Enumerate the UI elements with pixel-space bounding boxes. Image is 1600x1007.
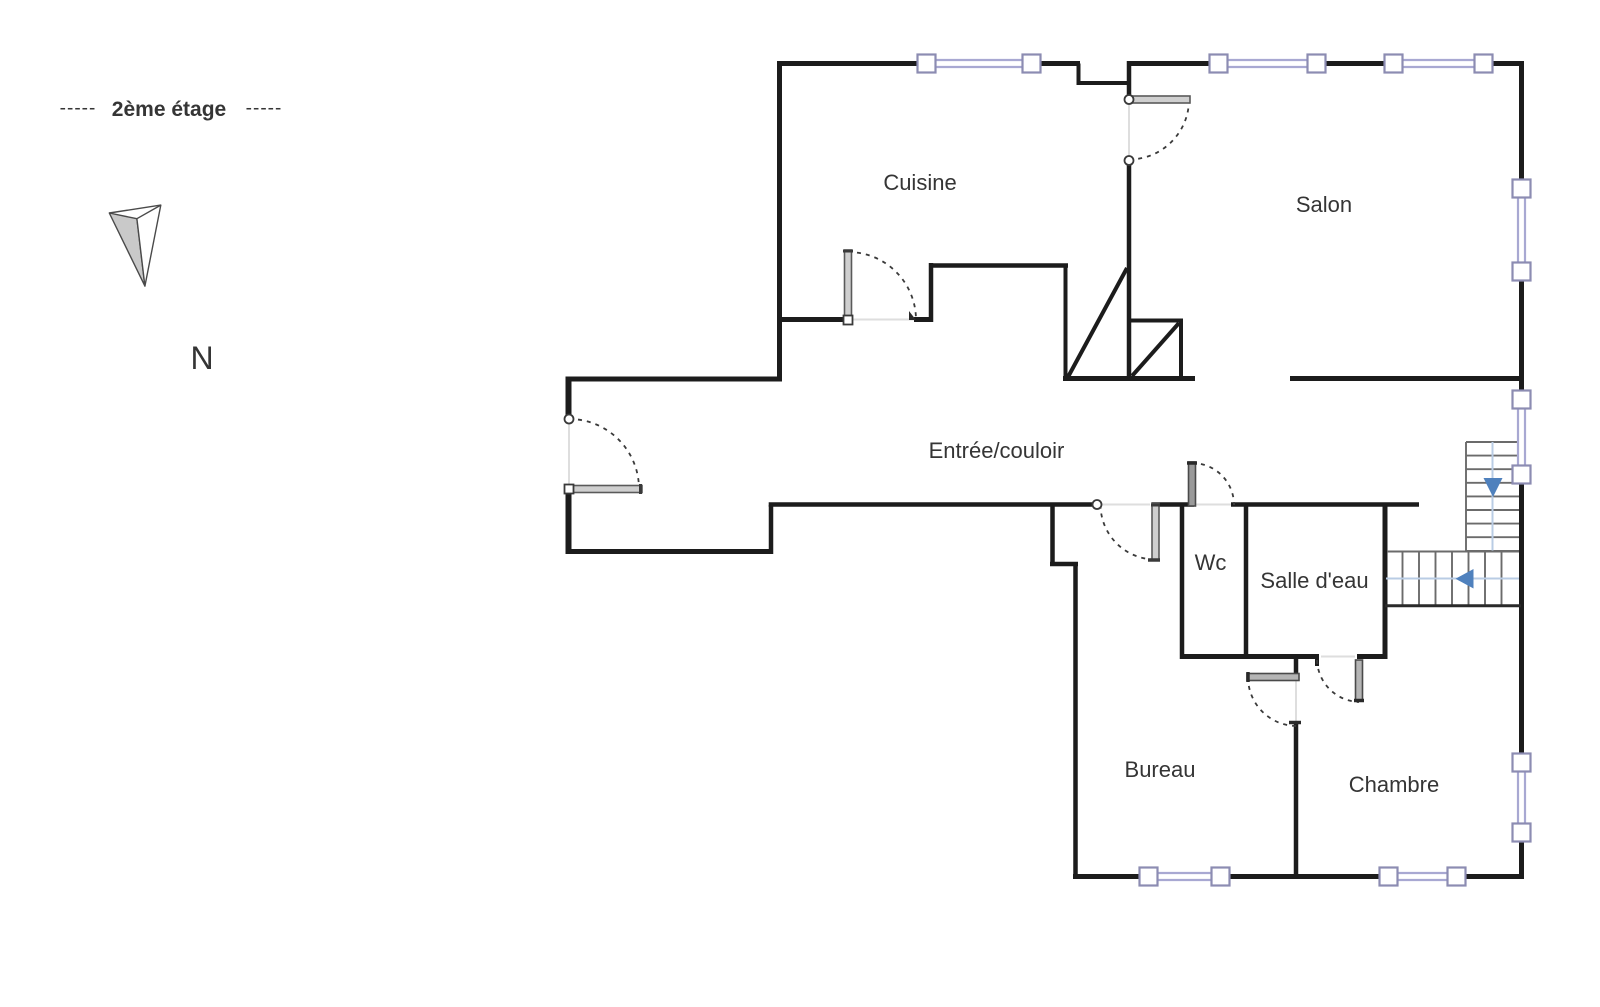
svg-text:N: N [190,340,213,376]
svg-text:Wc: Wc [1195,550,1227,575]
svg-text:2ème étage: 2ème étage [112,98,226,121]
svg-text:Salon: Salon [1296,192,1352,217]
svg-text:Bureau: Bureau [1125,757,1196,782]
svg-text:Cuisine: Cuisine [883,170,956,195]
svg-text:-----: ----- [60,98,97,119]
svg-text:-----: ----- [246,98,283,119]
svg-text:Entrée/couloir: Entrée/couloir [929,438,1065,463]
svg-text:Chambre: Chambre [1349,772,1439,797]
svg-text:Salle d'eau: Salle d'eau [1260,568,1368,593]
